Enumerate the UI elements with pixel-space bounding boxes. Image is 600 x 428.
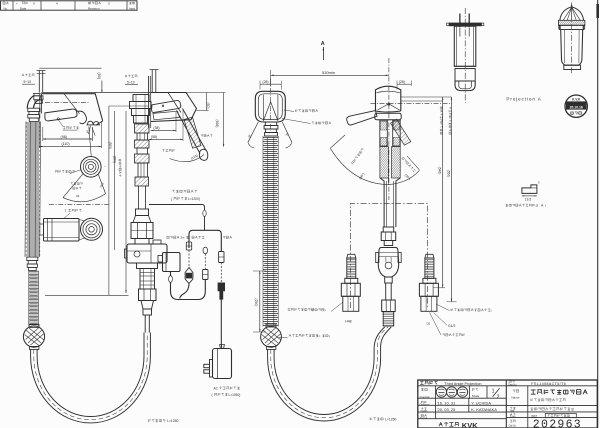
svg-text:Date: Date bbox=[20, 6, 27, 10]
svg-text:Name: Name bbox=[511, 395, 519, 399]
svg-text:5~10: 5~10 bbox=[127, 81, 135, 85]
svg-text:202963: 202963 bbox=[533, 419, 582, 428]
svg-text:): ) bbox=[325, 308, 326, 312]
svg-text:G1/2: G1/2 bbox=[448, 324, 455, 328]
svg-text:Third Angle Projection: Third Angle Projection bbox=[444, 382, 481, 386]
svg-text:530min: 530min bbox=[322, 70, 335, 75]
svg-text:'16. 10. 31: '16. 10. 31 bbox=[437, 400, 456, 405]
svg-text:2: 2 bbox=[497, 395, 500, 401]
svg-text:FSL1408ACT5/T6: FSL1408ACT5/T6 bbox=[531, 382, 566, 386]
svg-text:~: ~ bbox=[104, 165, 106, 169]
svg-text:L=1200): L=1200) bbox=[188, 197, 200, 201]
svg-text:(38): (38) bbox=[154, 126, 160, 130]
svg-text:Mat.: Mat. bbox=[510, 409, 515, 412]
svg-text:Revision: Revision bbox=[88, 6, 100, 10]
svg-text:(: ( bbox=[312, 308, 313, 312]
svg-text:(28): (28) bbox=[399, 80, 405, 84]
svg-text:1: 1 bbox=[492, 388, 495, 394]
svg-text:(5: (5 bbox=[536, 204, 539, 208]
svg-text:KVK: KVK bbox=[462, 421, 478, 428]
svg-text:19.5: 19.5 bbox=[525, 197, 531, 201]
svg-text:(98): (98) bbox=[61, 135, 67, 139]
svg-text:K.V.K: K.V.K bbox=[572, 97, 581, 101]
svg-text:Appd: Appd bbox=[129, 6, 136, 10]
svg-text:H48: H48 bbox=[345, 319, 351, 323]
svg-text:3m: 3m bbox=[181, 236, 186, 240]
svg-text:AC: AC bbox=[214, 386, 219, 390]
svg-text:32: 32 bbox=[76, 194, 80, 198]
svg-text:T: T bbox=[65, 209, 67, 213]
svg-text:L=1050): L=1050) bbox=[229, 393, 241, 397]
svg-text:Code: Code bbox=[510, 417, 516, 419]
svg-text:(550): (550) bbox=[447, 170, 451, 178]
svg-text:L=1250: L=1250 bbox=[167, 419, 179, 423]
svg-text:Dwg.No.: Dwg.No. bbox=[508, 385, 517, 387]
svg-text:(58): (58) bbox=[151, 135, 157, 139]
svg-text:Y. UCHIDA: Y. UCHIDA bbox=[471, 400, 491, 405]
svg-text:Drawn: Drawn bbox=[421, 410, 428, 413]
svg-text:L=1250: L=1250 bbox=[385, 417, 397, 421]
svg-text:(50): (50) bbox=[97, 73, 101, 79]
svg-text:Control: Control bbox=[420, 395, 430, 399]
svg-text:(28): (28) bbox=[263, 80, 269, 84]
svg-text:(546): (546) bbox=[438, 167, 442, 175]
svg-text:A: A bbox=[321, 41, 325, 47]
svg-text:(110): (110) bbox=[62, 142, 70, 146]
svg-text:Scale: Scale bbox=[472, 394, 480, 398]
svg-text:20.10.16: 20.10.16 bbox=[570, 105, 583, 109]
svg-text:(250): (250) bbox=[254, 299, 258, 307]
svg-text:Designed: Designed bbox=[420, 405, 430, 407]
svg-text:(928): (928) bbox=[215, 120, 219, 128]
svg-text:(L=: (L= bbox=[316, 334, 321, 338]
svg-text:): ) bbox=[545, 204, 546, 208]
svg-text:(50): (50) bbox=[206, 103, 210, 109]
svg-text:5~10: 5~10 bbox=[24, 80, 32, 84]
svg-text:No.: No. bbox=[4, 6, 9, 10]
svg-text:): ) bbox=[491, 308, 492, 312]
svg-text:+: + bbox=[16, 2, 18, 6]
svg-text:(: ( bbox=[475, 308, 476, 312]
svg-text:K. KATANAKA: K. KATANAKA bbox=[471, 407, 497, 412]
svg-text:(305): (305) bbox=[108, 142, 112, 149]
svg-text:(350): (350) bbox=[112, 156, 116, 163]
svg-text:C6: C6 bbox=[426, 321, 430, 325]
svg-text:Cat.No.: Cat.No. bbox=[509, 425, 517, 428]
svg-text:Projection A: Projection A bbox=[506, 96, 541, 101]
svg-text:Traced: Traced bbox=[420, 417, 428, 420]
svg-text:'20. 03. 25: '20. 03. 25 bbox=[437, 407, 456, 412]
svg-text:): ) bbox=[329, 334, 330, 338]
